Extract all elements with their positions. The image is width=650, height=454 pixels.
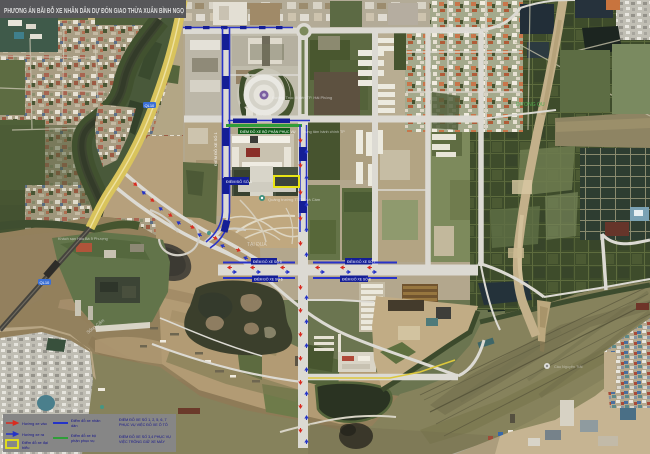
svg-text:TẠI ĐUA: TẠI ĐUA: [247, 242, 267, 248]
svg-text:phận phục vụ: phận phục vụ: [71, 438, 94, 443]
svg-text:Cầu Nguyễn Trãi: Cầu Nguyễn Trãi: [554, 364, 583, 369]
svg-text:Đường Trục đi đến TP. Hải Phòn: Đường Trục đi đến TP. Hải Phòng: [272, 95, 332, 100]
svg-text:biểu: biểu: [22, 445, 29, 450]
svg-text:QL10: QL10: [40, 280, 51, 285]
svg-text:ĐIỂM ĐỖ XE SỐ 7: ĐIỂM ĐỖ XE SỐ 7: [347, 259, 376, 264]
svg-text:VIỆC TRÔNG GIỮ XE MÁY: VIỆC TRÔNG GIỮ XE MÁY: [119, 439, 165, 444]
svg-text:ĐIỂM ĐỖ XE SỐ 6: ĐIỂM ĐỖ XE SỐ 6: [254, 277, 283, 282]
svg-text:ĐIỂM ĐỖ XE BỘ PHẬN PHỤC VỤ: ĐIỂM ĐỖ XE BỘ PHẬN PHỤC VỤ: [240, 129, 296, 134]
svg-text:Hướng xe ra: Hướng xe ra: [22, 432, 45, 437]
svg-text:QL10: QL10: [145, 103, 156, 108]
svg-text:Hướng xe vào: Hướng xe vào: [22, 421, 47, 426]
svg-text:Quảng trường TT TP và Cầm: Quảng trường TT TP và Cầm: [268, 197, 321, 202]
svg-text:PHƯƠNG ÁN BÃI ĐỖ XE NHÂN DÂN D: PHƯƠNG ÁN BÃI ĐỖ XE NHÂN DÂN DỰ ĐÓN GIAO…: [4, 6, 184, 15]
svg-text:Chung Hoàng Thượng TSHP: Chung Hoàng Thượng TSHP: [440, 31, 490, 35]
svg-text:DƯƠNG QU: DƯƠNG QU: [516, 102, 545, 108]
svg-text:dân: dân: [71, 423, 78, 428]
svg-text:ĐIỂM ĐỖ XE SỐ 5: ĐIỂM ĐỖ XE SỐ 5: [253, 259, 282, 264]
svg-text:VinGold City: VinGold City: [58, 407, 78, 411]
svg-text:ĐIỂM ĐỖ XE SỐ 1, 2, 5, 6, 7: ĐIỂM ĐỖ XE SỐ 1, 2, 5, 6, 7: [119, 417, 167, 422]
svg-text:ĐIỂM ĐỖ XE SỐ 3,4 PHỤC VỤ: ĐIỂM ĐỖ XE SỐ 3,4 PHỤC VỤ: [119, 434, 171, 439]
svg-text:ĐIỂM ĐỖ XE SỐ 8: ĐIỂM ĐỖ XE SỐ 8: [342, 277, 371, 282]
svg-text:ĐIỂM ĐỖ SỐ 1: ĐIỂM ĐỖ SỐ 1: [226, 179, 252, 184]
svg-text:ĐIỂM ĐỖ XE SỐ 1: ĐIỂM ĐỖ XE SỐ 1: [213, 131, 218, 166]
svg-text:PHỤC VỤ VIỆC ĐỖ XE Ô TÔ: PHỤC VỤ VIỆC ĐỖ XE Ô TÔ: [119, 422, 168, 427]
svg-text:Trung tâm hành chính TP: Trung tâm hành chính TP: [302, 130, 345, 134]
svg-text:Khách sạn Hòa Bá 5 Phượng: Khách sạn Hòa Bá 5 Phượng: [58, 237, 108, 241]
